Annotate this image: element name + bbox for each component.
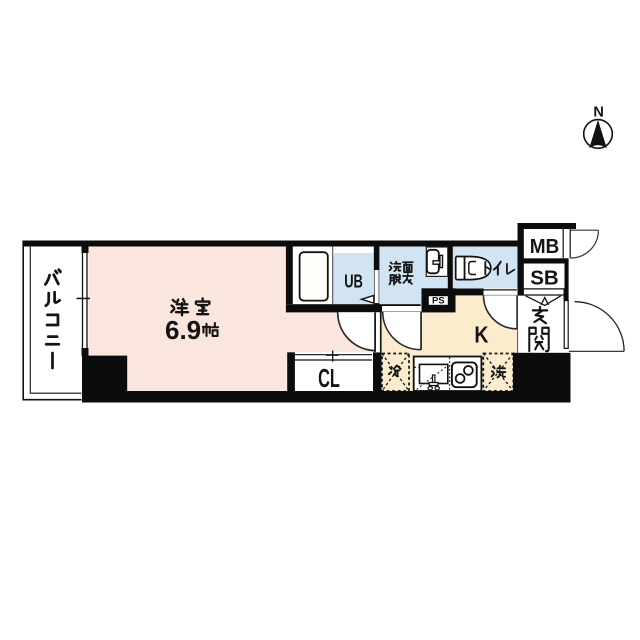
svg-text:6.9: 6.9: [165, 315, 201, 345]
svg-text:SB: SB: [530, 267, 558, 290]
svg-text:MB: MB: [530, 235, 560, 258]
svg-text:N: N: [593, 105, 603, 121]
svg-text:PS: PS: [432, 296, 445, 307]
svg-text:UB: UB: [344, 272, 363, 292]
svg-text:K: K: [474, 321, 488, 348]
svg-text:CL: CL: [318, 363, 340, 393]
